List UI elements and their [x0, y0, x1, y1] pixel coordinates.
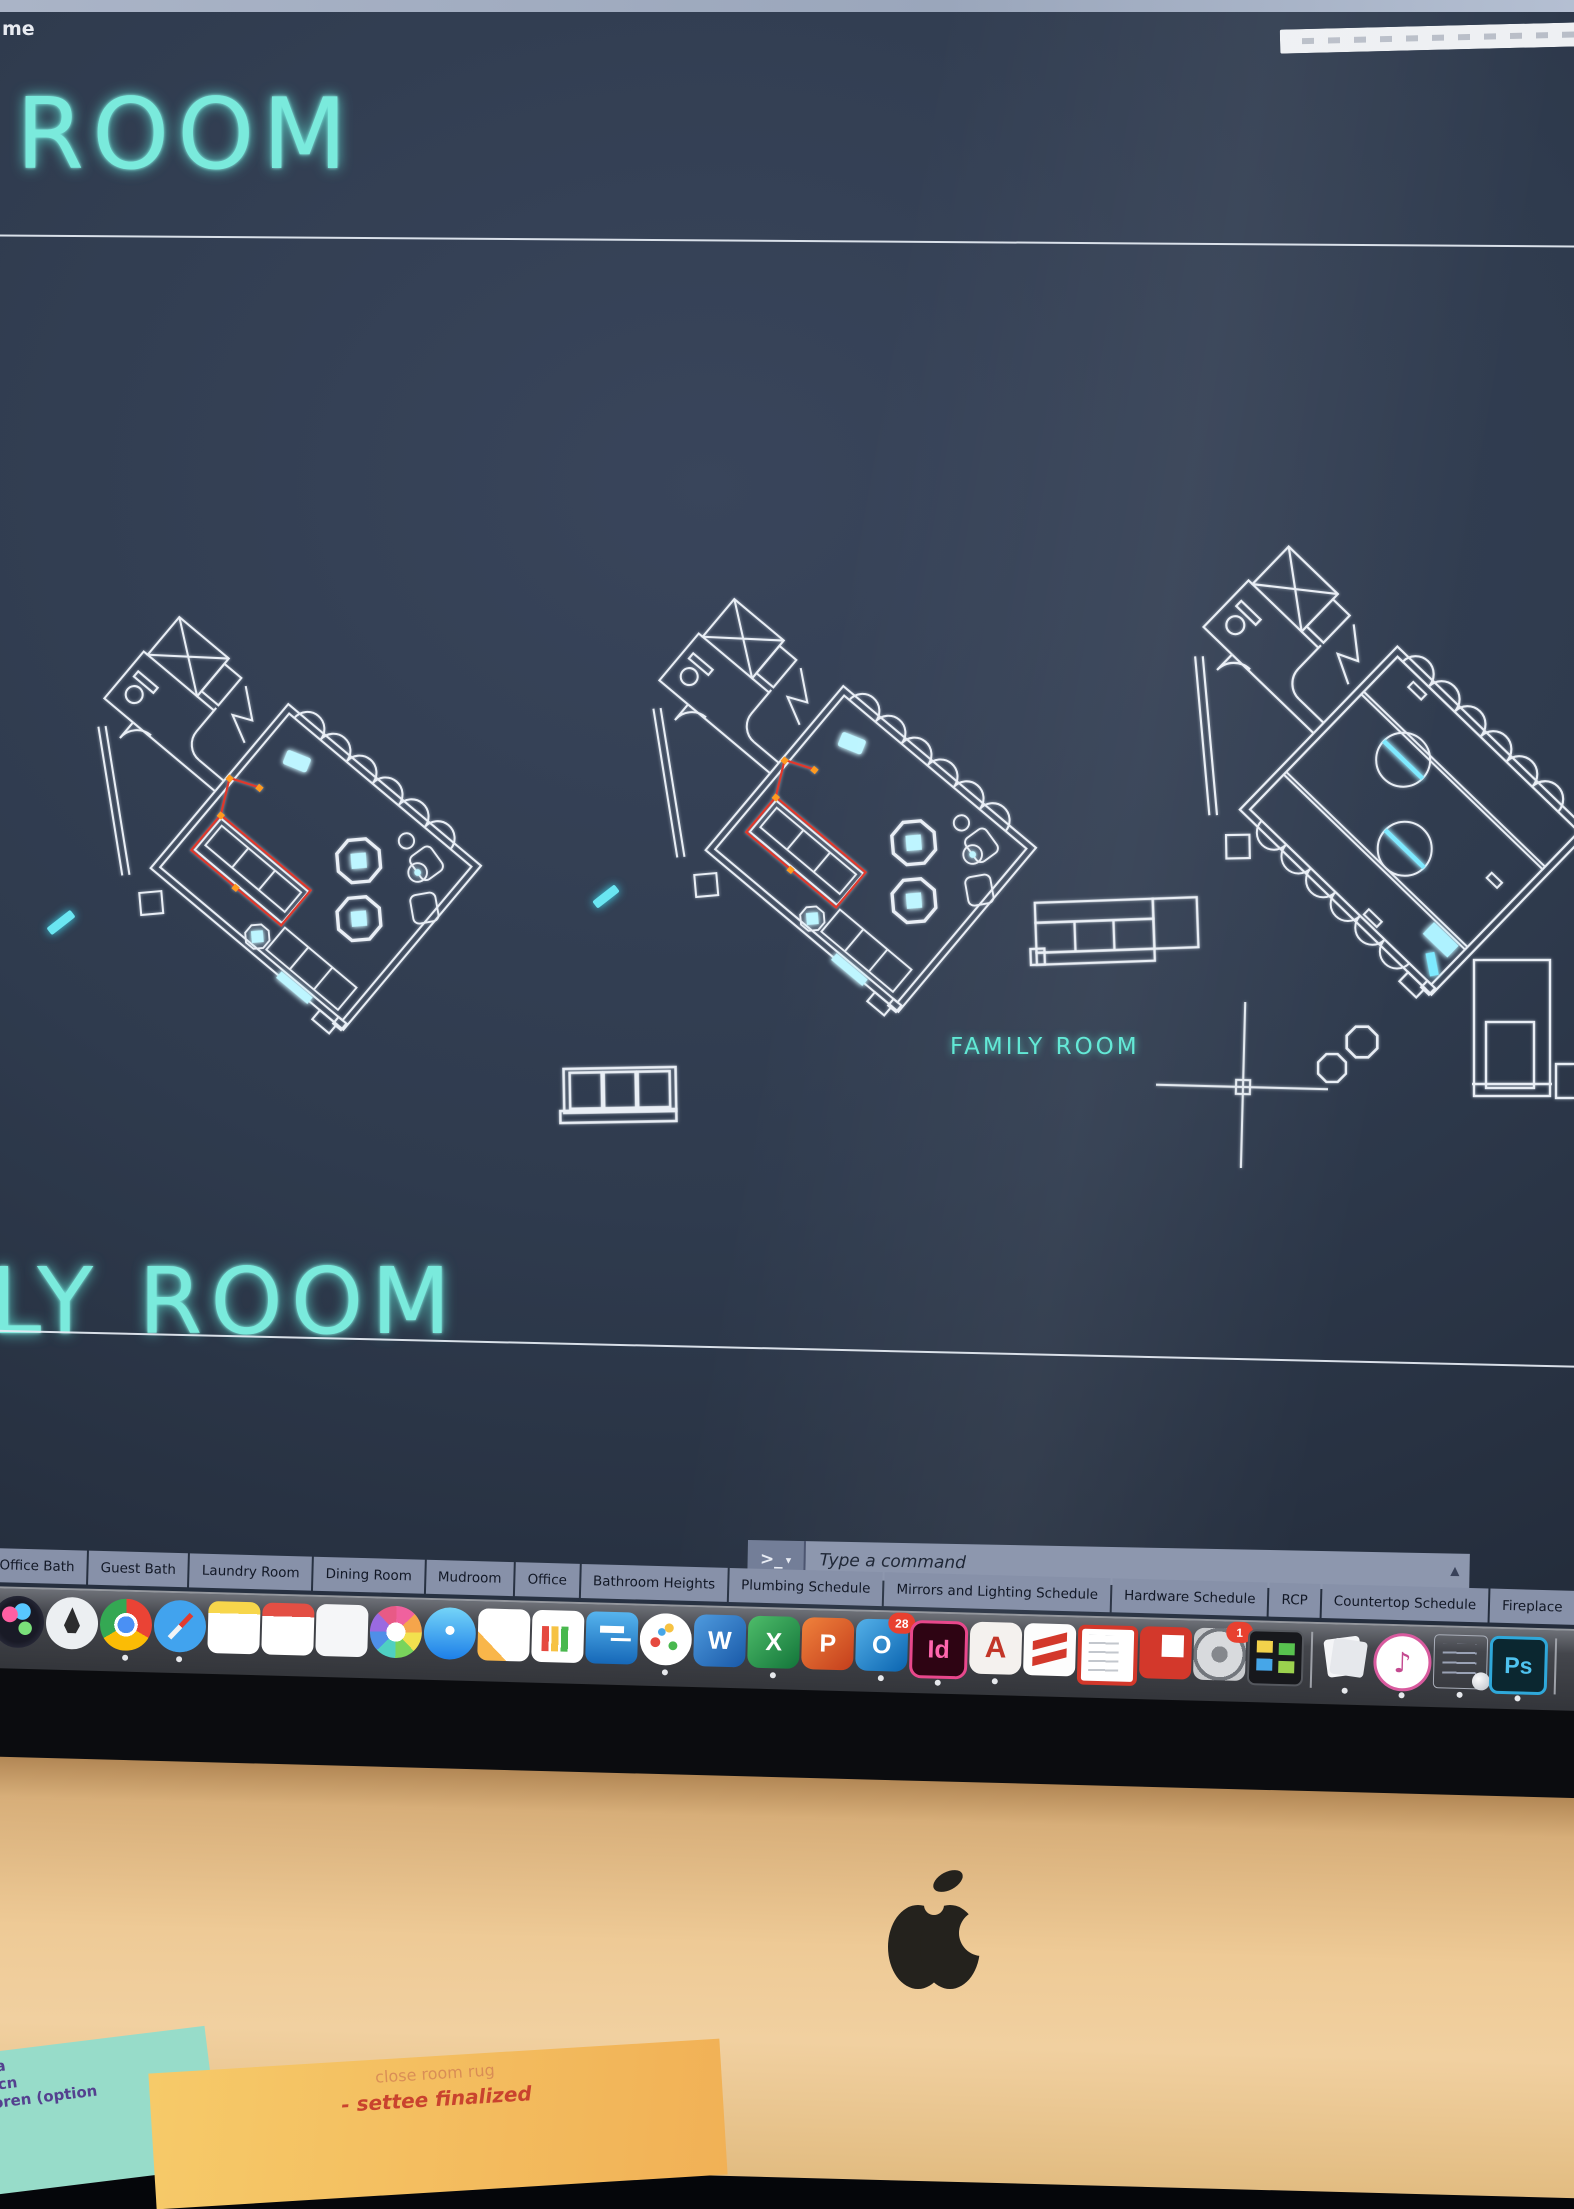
- dock-photos-icon[interactable]: [369, 1605, 422, 1658]
- dock-word-icon[interactable]: W: [693, 1614, 746, 1667]
- dock-icon-letter: X: [765, 1628, 782, 1657]
- menu-fragment: me: [2, 18, 35, 40]
- dock-sketchup-icon[interactable]: [1023, 1623, 1076, 1676]
- layout-tab-mirrors-and-lighting-schedule[interactable]: Mirrors and Lighting Schedule: [884, 1572, 1111, 1612]
- floor-plan-middle[interactable]: [565, 559, 1055, 1059]
- dock-siri-icon[interactable]: [0, 1595, 45, 1648]
- layout-tab-laundry-room[interactable]: Laundry Room: [189, 1553, 312, 1590]
- layout-tab-hardware-schedule[interactable]: Hardware Schedule: [1112, 1578, 1268, 1616]
- dock-photoshop-icon[interactable]: Ps: [1489, 1636, 1549, 1696]
- running-indicator-dot: [1342, 1688, 1348, 1694]
- layout-tab-plumbing-schedule[interactable]: Plumbing Schedule: [729, 1568, 883, 1606]
- layout-tab-bathroom-heights[interactable]: Bathroom Heights: [580, 1564, 727, 1602]
- dock-color-panels-icon[interactable]: [1247, 1629, 1304, 1686]
- dock-icon-letter: Ps: [1504, 1652, 1533, 1680]
- floor-plan-left[interactable]: [10, 577, 500, 1077]
- dock-excel-icon[interactable]: X: [747, 1616, 800, 1669]
- dock-divider: [1310, 1632, 1314, 1688]
- dock-reminders-icon[interactable]: [315, 1604, 368, 1657]
- running-indicator-dot: [992, 1678, 998, 1684]
- dock-icon-letter: A: [984, 1631, 1007, 1666]
- dock-autocad-icon[interactable]: A: [969, 1622, 1022, 1675]
- layout-tab-dining-room[interactable]: Dining Room: [313, 1557, 424, 1594]
- dock-outlook-icon[interactable]: O28: [855, 1619, 908, 1672]
- dock-music-icon[interactable]: [1373, 1633, 1433, 1693]
- dock-system-preferences-icon[interactable]: 1: [1193, 1628, 1246, 1681]
- running-indicator-dot: [122, 1655, 128, 1661]
- running-indicator-dot: [1457, 1692, 1463, 1698]
- running-indicator-dot: [770, 1672, 776, 1678]
- expand-arrow-icon[interactable]: ▲: [1450, 1563, 1460, 1577]
- dock-icon-letter: Id: [927, 1635, 950, 1665]
- running-indicator-dot: [176, 1656, 182, 1662]
- prompt-icon: >_: [760, 1549, 783, 1569]
- autocad-canvas[interactable]: me ROOM FAMILY ROOM: [0, 12, 1574, 1706]
- layout-tab-office-bath[interactable]: Office Bath: [0, 1548, 87, 1585]
- dock-stickies-icon[interactable]: [1077, 1625, 1139, 1687]
- chevron-down-icon[interactable]: ▾: [786, 1553, 792, 1566]
- running-indicator-dot: [1398, 1692, 1404, 1698]
- dock-icon-letter: P: [819, 1629, 836, 1658]
- cabinet-elevation[interactable]: [1470, 956, 1574, 1108]
- command-placeholder: Type a command: [819, 1550, 966, 1573]
- dock-chrome-icon[interactable]: [99, 1598, 152, 1651]
- dock-launchpad-icon[interactable]: [45, 1597, 98, 1650]
- octagon-pair[interactable]: [1310, 1020, 1386, 1096]
- layout-tab-mudroom[interactable]: Mudroom: [425, 1560, 514, 1596]
- dock-indesign-icon[interactable]: Id: [909, 1620, 969, 1680]
- dock-messages-icon[interactable]: [423, 1607, 476, 1660]
- layout-tab-fireplace[interactable]: Fireplace: [1490, 1589, 1574, 1625]
- layout-tab-countertop-schedule[interactable]: Countertop Schedule: [1321, 1584, 1488, 1622]
- running-indicator-dot: [1514, 1695, 1520, 1701]
- divider-line-top: [0, 234, 1574, 248]
- sofa-chaise-block[interactable]: [1026, 881, 1208, 992]
- dock-powerpoint-icon[interactable]: P: [801, 1617, 854, 1670]
- sofa-block[interactable]: [553, 1057, 684, 1134]
- dock-mail-stack-icon[interactable]: [1433, 1634, 1488, 1689]
- layout-tab-rcp[interactable]: RCP: [1269, 1583, 1320, 1618]
- dock-keynote-icon[interactable]: [585, 1611, 638, 1664]
- running-indicator-dot: [878, 1675, 884, 1681]
- layout-tab-guest-bath[interactable]: Guest Bath: [88, 1551, 188, 1588]
- dock-icon-letter: W: [708, 1626, 732, 1656]
- room-label: FAMILY ROOM: [950, 1034, 1140, 1060]
- dock-calendar-icon[interactable]: [261, 1602, 314, 1655]
- dock-numbers-icon[interactable]: [531, 1610, 584, 1663]
- dock-dots-app-icon[interactable]: [639, 1613, 692, 1666]
- dock-safari-icon[interactable]: [153, 1600, 206, 1653]
- layout-tab-office[interactable]: Office: [515, 1562, 579, 1598]
- dock-divider: [1554, 1638, 1558, 1694]
- dock-pages-icon[interactable]: [477, 1608, 530, 1661]
- sheet-title-top: ROOM: [16, 78, 355, 192]
- toolbar-fragment: [1280, 22, 1574, 53]
- running-indicator-dot: [662, 1669, 668, 1675]
- apple-logo-icon: [876, 1856, 996, 2006]
- dock-document-stack-icon[interactable]: [1319, 1631, 1372, 1684]
- running-indicator-dot: [935, 1680, 941, 1686]
- dock-icon-letter: O: [872, 1630, 892, 1660]
- dock-notes-icon[interactable]: [207, 1601, 260, 1654]
- dock-layout-icon[interactable]: [1139, 1626, 1192, 1679]
